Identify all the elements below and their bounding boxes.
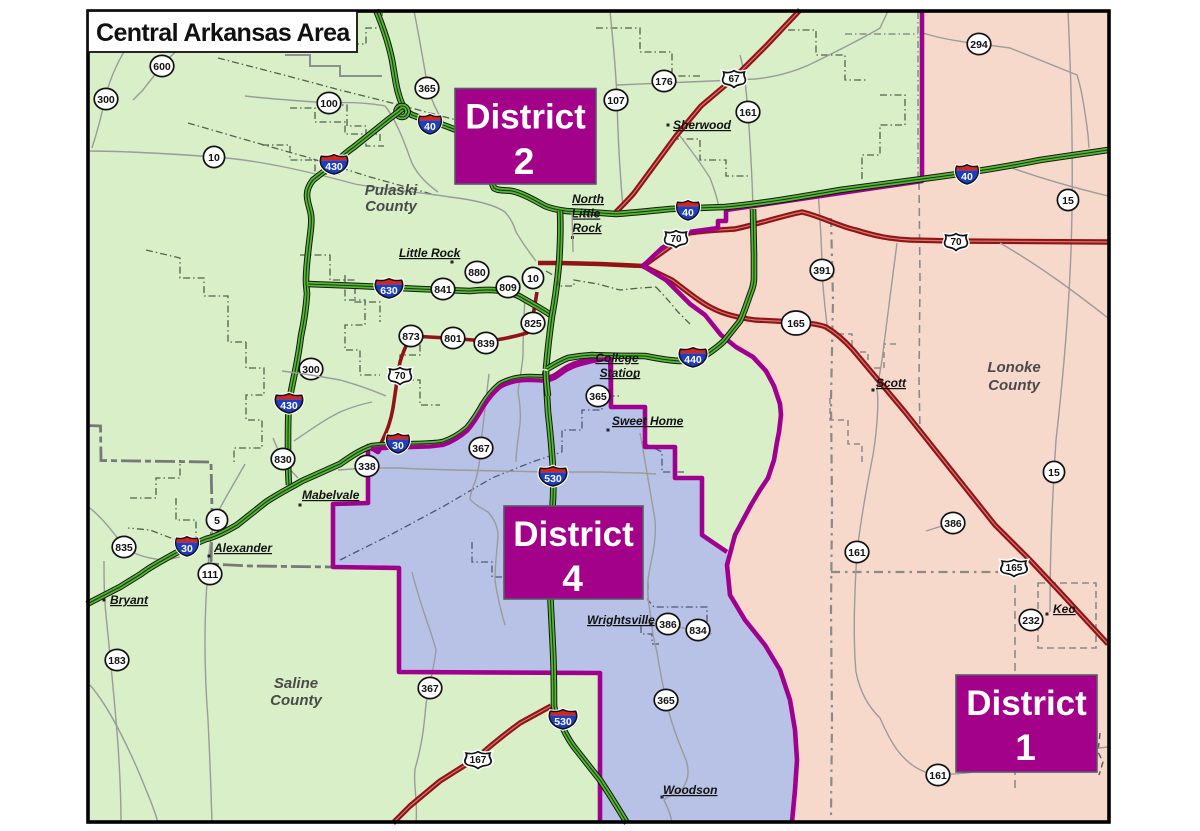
- svg-text:Wrightsville: Wrightsville: [587, 613, 655, 627]
- svg-text:40: 40: [961, 171, 973, 183]
- svg-text:15: 15: [1048, 467, 1060, 479]
- svg-text:839: 839: [477, 338, 495, 350]
- svg-text:430: 430: [325, 161, 343, 173]
- svg-text:Sherwood: Sherwood: [673, 118, 732, 132]
- svg-text:70: 70: [670, 234, 682, 245]
- svg-text:111: 111: [202, 569, 219, 581]
- svg-text:365: 365: [589, 391, 607, 403]
- svg-text:North: North: [572, 192, 604, 206]
- svg-text:Saline: Saline: [274, 675, 318, 692]
- svg-text:Bryant: Bryant: [110, 593, 149, 607]
- svg-text:841: 841: [434, 284, 452, 296]
- svg-text:183: 183: [108, 655, 126, 667]
- svg-text:100: 100: [320, 98, 338, 110]
- svg-text:880: 880: [468, 267, 486, 279]
- svg-text:386: 386: [659, 619, 677, 631]
- svg-text:Little Rock: Little Rock: [399, 246, 462, 260]
- svg-text:300: 300: [97, 94, 115, 106]
- svg-text:Mabelvale: Mabelvale: [302, 488, 360, 502]
- svg-text:365: 365: [418, 83, 436, 95]
- svg-text:367: 367: [472, 443, 490, 455]
- svg-text:70: 70: [950, 237, 962, 248]
- svg-text:Keo: Keo: [1053, 602, 1076, 616]
- svg-text:Rock: Rock: [572, 221, 603, 235]
- svg-text:Central Arkansas Area: Central Arkansas Area: [96, 19, 351, 47]
- svg-text:District: District: [513, 515, 634, 554]
- svg-text:809: 809: [499, 282, 517, 294]
- svg-text:232: 232: [1022, 615, 1040, 627]
- svg-text:40: 40: [424, 121, 436, 133]
- svg-text:530: 530: [544, 473, 562, 485]
- svg-text:630: 630: [380, 285, 398, 297]
- svg-text:600: 600: [153, 61, 171, 73]
- svg-text:70: 70: [394, 371, 406, 382]
- svg-text:440: 440: [684, 354, 702, 366]
- svg-text:District: District: [966, 684, 1087, 723]
- svg-text:67: 67: [728, 74, 740, 85]
- svg-text:835: 835: [115, 542, 133, 554]
- svg-text:Scott: Scott: [876, 376, 907, 390]
- svg-text:165: 165: [787, 318, 805, 330]
- svg-text:161: 161: [848, 547, 866, 559]
- svg-text:Lonoke: Lonoke: [987, 359, 1040, 376]
- svg-text:Woodson: Woodson: [663, 783, 717, 797]
- svg-text:176: 176: [655, 76, 673, 88]
- svg-text:107: 107: [607, 95, 625, 107]
- svg-text:161: 161: [929, 770, 947, 782]
- svg-text:825: 825: [524, 318, 542, 330]
- svg-text:District: District: [465, 98, 586, 137]
- svg-text:365: 365: [657, 695, 675, 707]
- svg-text:391: 391: [813, 265, 831, 277]
- svg-text:College: College: [595, 351, 639, 365]
- svg-text:834: 834: [689, 625, 707, 637]
- svg-text:15: 15: [1062, 195, 1074, 207]
- svg-text:County: County: [365, 198, 417, 215]
- svg-text:5: 5: [214, 515, 220, 527]
- svg-text:873: 873: [402, 331, 420, 343]
- svg-text:167: 167: [470, 755, 487, 766]
- svg-text:10: 10: [527, 273, 539, 285]
- svg-text:Little: Little: [572, 207, 601, 221]
- svg-text:430: 430: [280, 400, 298, 412]
- svg-text:30: 30: [392, 440, 404, 452]
- svg-text:Sweet Home: Sweet Home: [612, 414, 684, 428]
- svg-text:County: County: [988, 377, 1040, 394]
- svg-text:Alexander: Alexander: [213, 541, 273, 555]
- svg-text:County: County: [270, 692, 322, 709]
- svg-text:386: 386: [944, 518, 962, 530]
- svg-text:161: 161: [739, 107, 757, 119]
- svg-text:165: 165: [1006, 563, 1023, 574]
- svg-text:4: 4: [562, 558, 583, 599]
- svg-text:294: 294: [970, 39, 988, 51]
- svg-text:Pulaski: Pulaski: [365, 182, 418, 199]
- svg-text:830: 830: [274, 454, 292, 466]
- svg-text:30: 30: [181, 543, 193, 555]
- svg-text:530: 530: [554, 716, 572, 728]
- svg-text:338: 338: [358, 461, 376, 473]
- svg-text:2: 2: [514, 141, 535, 182]
- svg-text:367: 367: [421, 683, 439, 695]
- svg-text:10: 10: [208, 152, 220, 164]
- svg-text:40: 40: [682, 207, 694, 219]
- svg-text:801: 801: [444, 333, 462, 345]
- svg-text:1: 1: [1015, 727, 1036, 768]
